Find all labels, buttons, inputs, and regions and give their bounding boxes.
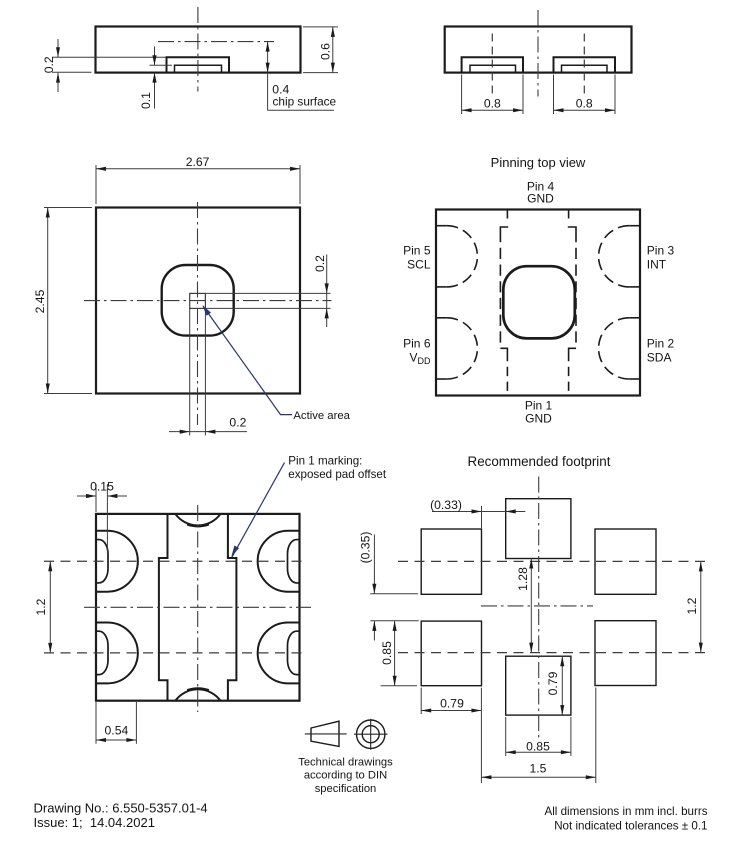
svg-text:0.1: 0.1 [139,92,153,109]
svg-text:Not indicated tolerances ± 0.1: Not indicated tolerances ± 0.1 [554,820,707,833]
svg-text:0.85: 0.85 [380,641,394,665]
svg-text:Pin 2: Pin 2 [647,337,675,351]
svg-text:INT: INT [647,257,667,271]
svg-text:Active area: Active area [293,410,350,422]
svg-text:SDA: SDA [647,350,672,364]
svg-text:chip surface: chip surface [273,95,337,109]
svg-text:Technical drawings: Technical drawings [298,756,393,768]
svg-text:1.2: 1.2 [34,598,48,615]
svg-text:0.54: 0.54 [105,724,129,738]
svg-text:specification: specification [315,783,377,795]
svg-text:(0.33): (0.33) [430,498,462,512]
svg-text:Recommended footprint: Recommended footprint [468,454,611,469]
svg-text:2.67: 2.67 [186,155,210,169]
svg-text:Pin 1 marking:: Pin 1 marking: [288,454,362,467]
svg-text:2.45: 2.45 [33,289,47,313]
svg-text:VDD: VDD [409,350,431,366]
svg-text:0.6: 0.6 [318,43,332,60]
svg-text:0.79: 0.79 [546,671,560,695]
svg-text:exposed pad offset: exposed pad offset [288,468,387,481]
svg-text:SCL: SCL [407,257,431,271]
svg-text:0.2: 0.2 [42,56,56,73]
svg-text:Pin 3: Pin 3 [647,244,675,258]
svg-text:Pin 1: Pin 1 [525,399,553,413]
svg-text:0.8: 0.8 [576,96,593,110]
svg-text:0.15: 0.15 [90,480,114,494]
svg-text:according to DIN: according to DIN [304,770,387,782]
svg-text:Pin 5: Pin 5 [403,244,431,258]
svg-text:Pin 6: Pin 6 [403,337,431,351]
svg-text:Drawing No.: 6.550-5357.01-4: Drawing No.: 6.550-5357.01-4 [34,801,208,816]
svg-text:(0.35): (0.35) [358,532,372,564]
svg-text:0.8: 0.8 [484,96,501,110]
svg-text:0.2: 0.2 [229,416,246,430]
svg-text:All dimensions in mm incl. bur: All dimensions in mm incl. burrs [544,805,707,818]
svg-text:GND: GND [527,192,554,206]
svg-text:GND: GND [525,412,552,426]
svg-text:0.85: 0.85 [526,739,550,753]
svg-text:0.2: 0.2 [313,255,327,272]
svg-text:Pinning top view: Pinning top view [491,155,586,170]
svg-text:1.2: 1.2 [685,597,699,614]
svg-text:1.5: 1.5 [530,761,547,775]
svg-text:1.28: 1.28 [516,567,530,591]
svg-text:0.79: 0.79 [440,697,464,711]
svg-text:Issue: 1; 14.04.2021: Issue: 1; 14.04.2021 [34,815,155,830]
